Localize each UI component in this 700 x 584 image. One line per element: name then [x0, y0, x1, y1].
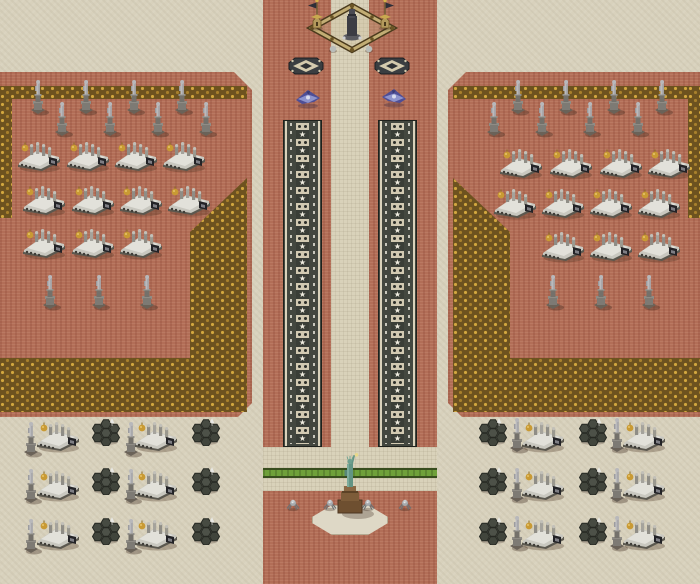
road-star-tile: ★	[296, 386, 309, 395]
memorial-truck-unit[interactable]	[544, 145, 596, 185]
memorial-truck-unit[interactable]	[114, 182, 166, 222]
road-dot-row	[391, 203, 404, 210]
right-star-road: ★★★★★★★★★★★★★★★★★★★★	[378, 120, 417, 447]
memorial-truck-icon	[584, 185, 636, 221]
memorial-truck-unit[interactable]	[632, 185, 684, 225]
road-dot-row	[296, 251, 309, 258]
road-dot-row	[391, 171, 404, 178]
road-dot-row	[296, 155, 309, 162]
road-star-tile: ★	[296, 242, 309, 251]
memorial-truck-icon	[516, 467, 568, 503]
memorial-truck-icon	[114, 182, 166, 218]
statue-unit[interactable]	[530, 100, 554, 142]
statue-icon	[637, 273, 661, 311]
road-dot-row	[391, 411, 404, 418]
memorial-truck-icon	[617, 467, 669, 503]
hex-cluster-icon	[477, 467, 509, 495]
memorial-truck-unit[interactable]	[66, 225, 118, 265]
statue-icon	[194, 100, 218, 138]
memorial-truck-icon	[584, 228, 636, 264]
road-star-tile: ★	[391, 290, 404, 299]
road-dash-line	[290, 123, 292, 444]
road-dot-row	[296, 123, 309, 130]
hex-cluster-icon	[90, 467, 122, 495]
hex-cluster[interactable]	[190, 517, 222, 549]
road-dot-row	[296, 203, 309, 210]
memorial-truck-icon	[544, 145, 596, 181]
road-star-tile: ★	[391, 194, 404, 203]
road-dot-row	[296, 315, 309, 322]
statue-icon	[135, 273, 159, 311]
memorial-truck-unit[interactable]	[617, 418, 669, 458]
fighter-jet-icon	[378, 85, 410, 109]
road-dot-row	[296, 219, 309, 226]
memorial-truck-unit[interactable]	[162, 182, 214, 222]
road-dot-row	[391, 155, 404, 162]
road-dash-line	[408, 123, 410, 444]
hex-cluster[interactable]	[90, 517, 122, 549]
statue-unit[interactable]	[589, 273, 613, 315]
statue-unit[interactable]	[602, 78, 626, 120]
statue-icon	[74, 78, 98, 116]
statue-icon	[530, 100, 554, 138]
memorial-truck-unit[interactable]	[594, 145, 646, 185]
road-edge-line	[380, 121, 382, 446]
road-dot-row	[391, 363, 404, 370]
road-star-tile: ★	[391, 306, 404, 315]
memorial-truck-icon	[61, 138, 113, 174]
memorial-truck-icon	[536, 185, 588, 221]
memorial-truck-icon	[31, 418, 83, 454]
statue-unit[interactable]	[135, 273, 159, 315]
terror-drone-unit[interactable]	[285, 496, 301, 516]
hex-cluster[interactable]	[577, 418, 609, 450]
center-path	[331, 0, 369, 468]
road-dash-line	[313, 123, 315, 444]
road-star-tile: ★	[391, 354, 404, 363]
terror-drone-icon	[285, 496, 301, 512]
road-dot-row	[391, 299, 404, 306]
road-edge-line	[318, 121, 320, 446]
road-star-tile: ★	[296, 418, 309, 427]
road-dot-row	[391, 347, 404, 354]
statue-unit[interactable]	[650, 78, 674, 120]
statue-icon	[87, 273, 111, 311]
flag-tower-icon	[307, 0, 327, 31]
memorial-truck-unit[interactable]	[129, 516, 181, 556]
memorial-truck-unit[interactable]	[157, 138, 209, 178]
memorial-truck-icon	[31, 467, 83, 503]
road-star-tile: ★	[296, 226, 309, 235]
memorial-truck-icon	[642, 145, 694, 181]
road-star-tile: ★	[391, 178, 404, 187]
terror-drone-unit[interactable]	[397, 496, 413, 516]
statue-of-liberty[interactable]	[312, 452, 388, 540]
hex-cluster[interactable]	[90, 418, 122, 450]
statue-unit[interactable]	[578, 100, 602, 142]
road-star-tile: ★	[296, 130, 309, 139]
road-dot-row	[391, 219, 404, 226]
left-gold-edge-border	[0, 86, 12, 218]
road-star-tile: ★	[391, 338, 404, 347]
memorial-truck-unit[interactable]	[17, 182, 69, 222]
game-map: ★★★★★★★★★★★★★★★★★★★★★★★★★★★★★★★★★★★★★★★★	[0, 0, 700, 584]
statue-unit[interactable]	[122, 78, 146, 120]
memorial-truck-icon	[129, 418, 181, 454]
memorial-truck-unit[interactable]	[129, 467, 181, 507]
memorial-truck-icon	[516, 516, 568, 552]
fighter-jet-unit[interactable]	[292, 86, 324, 114]
road-star-tile: ★	[296, 258, 309, 267]
statue-unit[interactable]	[50, 100, 74, 142]
statue-unit[interactable]	[146, 100, 170, 142]
memorial-truck-unit[interactable]	[114, 225, 166, 265]
memorial-truck-unit[interactable]	[12, 138, 64, 178]
memorial-truck-unit[interactable]	[632, 228, 684, 268]
road-star-stripe: ★★★★★★★★★★★★★★★★★★★★	[296, 123, 309, 444]
memorial-truck-unit[interactable]	[129, 418, 181, 458]
road-star-tile: ★	[391, 162, 404, 171]
statue-icon	[602, 78, 626, 116]
memorial-truck-icon	[129, 467, 181, 503]
memorial-truck-icon	[17, 182, 69, 218]
hex-cluster[interactable]	[190, 418, 222, 450]
road-dot-row	[391, 315, 404, 322]
road-dot-row	[296, 235, 309, 242]
road-star-tile: ★	[296, 290, 309, 299]
statue-icon	[506, 78, 530, 116]
flag-tower-icon	[375, 0, 395, 31]
memorial-truck-icon	[494, 145, 546, 181]
road-dot-row	[296, 283, 309, 290]
memorial-truck-icon	[632, 228, 684, 264]
hex-cluster-icon	[477, 517, 509, 545]
fighter-jet-icon	[292, 86, 324, 110]
memorial-truck-unit[interactable]	[516, 418, 568, 458]
statue-icon	[554, 78, 578, 116]
memorial-truck-icon	[114, 225, 166, 261]
memorial-truck-icon	[536, 228, 588, 264]
road-dot-row	[391, 123, 404, 130]
statue-icon	[146, 100, 170, 138]
road-star-tile: ★	[296, 434, 309, 443]
memorial-truck-icon	[12, 138, 64, 174]
road-dot-row	[391, 139, 404, 146]
memorial-truck-icon	[488, 185, 540, 221]
statue-icon	[650, 78, 674, 116]
memorial-truck-icon	[617, 516, 669, 552]
road-star-tile: ★	[391, 386, 404, 395]
memorial-truck-icon	[632, 185, 684, 221]
statue-unit[interactable]	[74, 78, 98, 120]
road-dot-row	[391, 283, 404, 290]
memorial-truck-icon	[594, 145, 646, 181]
memorial-truck-icon	[66, 225, 118, 261]
road-dot-row	[391, 235, 404, 242]
memorial-truck-unit[interactable]	[61, 138, 113, 178]
memorial-truck-unit[interactable]	[66, 182, 118, 222]
flag-tower[interactable]	[375, 0, 395, 35]
road-dash-line	[385, 123, 387, 444]
road-star-tile: ★	[296, 210, 309, 219]
memorial-truck-unit[interactable]	[642, 145, 694, 185]
road-dot-row	[296, 299, 309, 306]
hex-cluster-icon	[577, 467, 609, 495]
memorial-truck-icon	[162, 182, 214, 218]
road-dot-row	[391, 379, 404, 386]
memorial-truck-unit[interactable]	[584, 185, 636, 225]
statue-unit[interactable]	[38, 273, 62, 315]
fighter-jet-unit[interactable]	[378, 85, 410, 113]
left-star-road: ★★★★★★★★★★★★★★★★★★★★	[283, 120, 322, 447]
road-star-tile: ★	[296, 338, 309, 347]
road-dot-row	[296, 171, 309, 178]
road-star-tile: ★	[296, 322, 309, 331]
statue-unit[interactable]	[554, 78, 578, 120]
road-dot-row	[296, 395, 309, 402]
memorial-truck-unit[interactable]	[536, 228, 588, 268]
statue-unit[interactable]	[170, 78, 194, 120]
road-dot-row	[296, 347, 309, 354]
hex-cluster-icon	[90, 418, 122, 446]
hex-cluster-icon	[577, 517, 609, 545]
road-star-tile: ★	[296, 306, 309, 315]
road-edge-line	[413, 121, 415, 446]
hex-cluster[interactable]	[190, 467, 222, 499]
memorial-truck-unit[interactable]	[617, 467, 669, 507]
road-star-tile: ★	[296, 402, 309, 411]
statue-icon	[122, 78, 146, 116]
statue-icon	[578, 100, 602, 138]
statue-icon	[26, 78, 50, 116]
memorial-truck-icon	[17, 225, 69, 261]
road-dot-row	[391, 331, 404, 338]
road-star-tile: ★	[296, 274, 309, 283]
memorial-truck-icon	[157, 138, 209, 174]
terror-drone-icon	[397, 496, 413, 512]
road-star-tile: ★	[391, 274, 404, 283]
hex-cluster-icon	[577, 418, 609, 446]
memorial-truck-unit[interactable]	[584, 228, 636, 268]
road-dot-row	[296, 379, 309, 386]
hex-cluster[interactable]	[477, 517, 509, 549]
road-dot-row	[296, 267, 309, 274]
road-star-tile: ★	[391, 258, 404, 267]
memorial-truck-unit[interactable]	[17, 225, 69, 265]
memorial-truck-icon	[617, 418, 669, 454]
road-star-tile: ★	[296, 370, 309, 379]
road-dot-row	[391, 251, 404, 258]
hex-cluster-icon	[190, 517, 222, 545]
statue-icon	[38, 273, 62, 311]
road-star-tile: ★	[391, 130, 404, 139]
hex-cluster[interactable]	[477, 418, 509, 450]
statue-icon	[98, 100, 122, 138]
flag-tower[interactable]	[307, 0, 327, 35]
statue-unit[interactable]	[87, 273, 111, 315]
memorial-truck-icon	[109, 138, 161, 174]
road-dot-row	[296, 139, 309, 146]
memorial-truck-unit[interactable]	[31, 467, 83, 507]
statue-icon	[170, 78, 194, 116]
hex-cluster-icon	[90, 517, 122, 545]
road-dot-row	[391, 267, 404, 274]
statue-icon	[541, 273, 565, 311]
hex-cluster-icon	[190, 467, 222, 495]
road-dot-row	[391, 187, 404, 194]
memorial-truck-unit[interactable]	[109, 138, 161, 178]
hex-cluster[interactable]	[90, 467, 122, 499]
statue-unit[interactable]	[482, 100, 506, 142]
road-dot-row	[296, 187, 309, 194]
memorial-truck-unit[interactable]	[494, 145, 546, 185]
hex-cluster-icon	[190, 418, 222, 446]
road-star-tile: ★	[391, 418, 404, 427]
statue-of-liberty-icon	[312, 452, 388, 536]
statue-unit[interactable]	[626, 100, 650, 142]
statue-unit[interactable]	[506, 78, 530, 120]
memorial-truck-unit[interactable]	[488, 185, 540, 225]
statue-unit[interactable]	[26, 78, 50, 120]
road-star-tile: ★	[296, 178, 309, 187]
road-star-tile: ★	[391, 210, 404, 219]
statue-icon	[626, 100, 650, 138]
memorial-truck-unit[interactable]	[31, 418, 83, 458]
road-star-tile: ★	[296, 354, 309, 363]
road-dot-row	[296, 331, 309, 338]
memorial-truck-unit[interactable]	[516, 516, 568, 556]
hex-cluster[interactable]	[577, 517, 609, 549]
road-dot-row	[391, 395, 404, 402]
memorial-truck-icon	[66, 182, 118, 218]
memorial-truck-unit[interactable]	[617, 516, 669, 556]
statue-unit[interactable]	[541, 273, 565, 315]
statue-unit[interactable]	[98, 100, 122, 142]
road-star-tile: ★	[296, 162, 309, 171]
road-star-tile: ★	[391, 146, 404, 155]
road-star-tile: ★	[296, 194, 309, 203]
road-star-tile: ★	[296, 146, 309, 155]
road-star-tile: ★	[391, 434, 404, 443]
road-edge-line	[285, 121, 287, 446]
road-dot-row	[296, 363, 309, 370]
road-star-tile: ★	[391, 370, 404, 379]
road-star-tile: ★	[391, 322, 404, 331]
memorial-truck-icon	[31, 516, 83, 552]
memorial-truck-unit[interactable]	[536, 185, 588, 225]
road-dot-row	[296, 427, 309, 434]
hex-cluster[interactable]	[477, 467, 509, 499]
road-star-stripe: ★★★★★★★★★★★★★★★★★★★★	[391, 123, 404, 444]
memorial-truck-unit[interactable]	[31, 516, 83, 556]
road-star-tile: ★	[391, 242, 404, 251]
memorial-truck-unit[interactable]	[516, 467, 568, 507]
statue-unit[interactable]	[194, 100, 218, 142]
statue-unit[interactable]	[637, 273, 661, 315]
road-dot-row	[296, 411, 309, 418]
memorial-truck-icon	[516, 418, 568, 454]
road-star-tile: ★	[391, 226, 404, 235]
road-star-tile: ★	[391, 402, 404, 411]
road-dot-row	[391, 427, 404, 434]
hex-cluster[interactable]	[577, 467, 609, 499]
memorial-truck-icon	[129, 516, 181, 552]
statue-icon	[50, 100, 74, 138]
statue-icon	[482, 100, 506, 138]
statue-icon	[589, 273, 613, 311]
hex-cluster-icon	[477, 418, 509, 446]
